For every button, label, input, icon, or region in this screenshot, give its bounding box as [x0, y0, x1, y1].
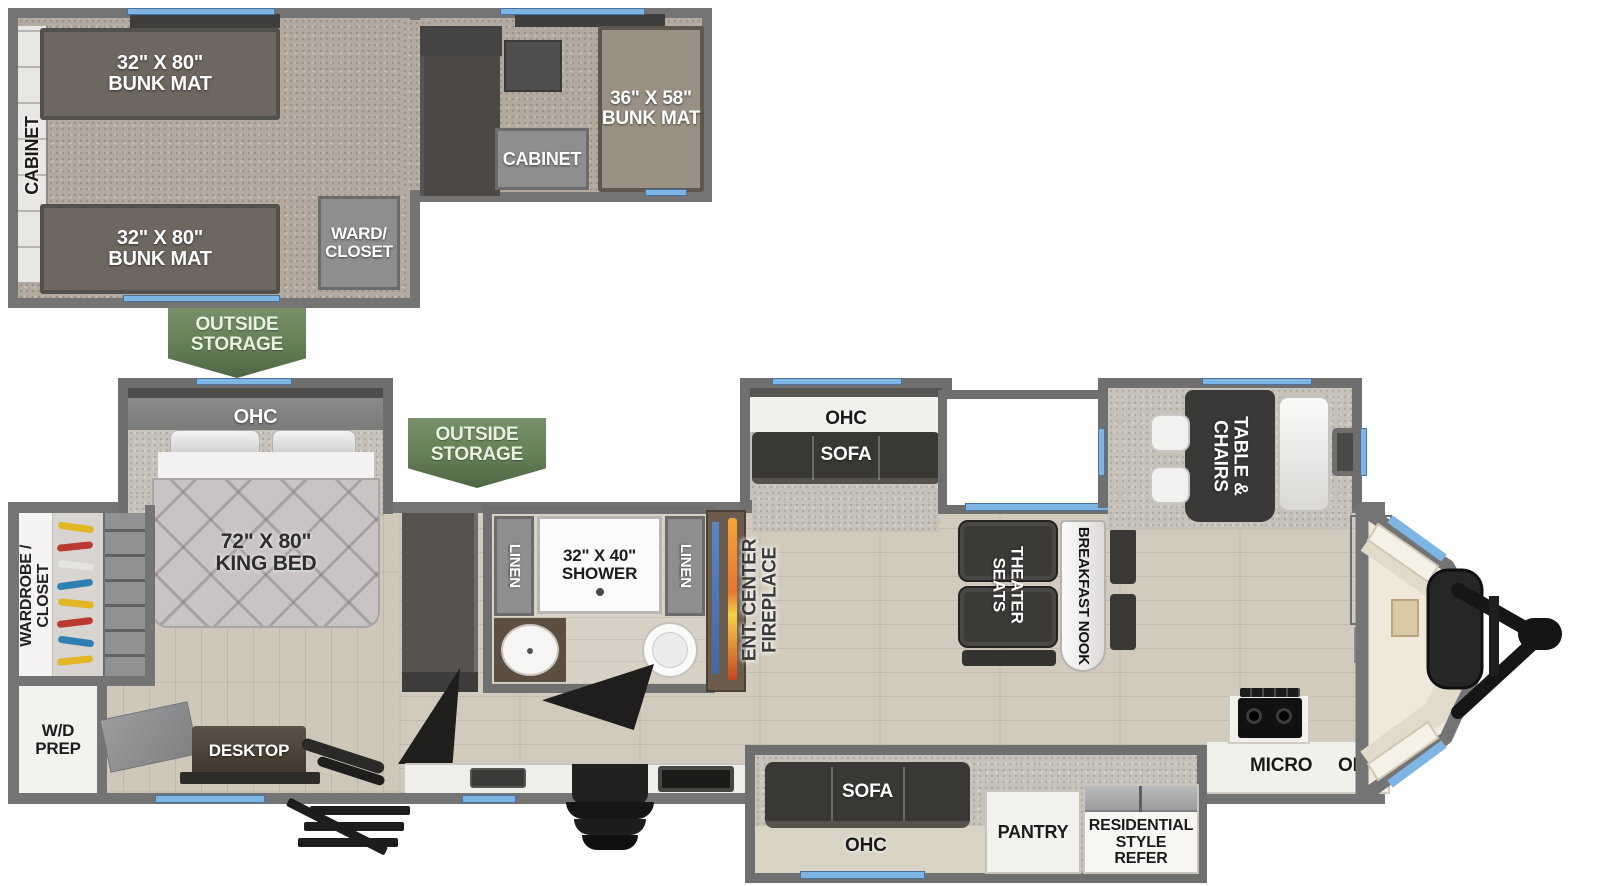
wardrobe-shelves: [103, 513, 149, 679]
dinette-table-label: TABLE &CHAIRS: [1210, 416, 1250, 496]
bedroom-window-bottom: [155, 795, 265, 803]
loft-window-top-right: [500, 8, 645, 15]
sofa-slide-ohc-label: OHC: [825, 409, 867, 429]
outside-storage-2-label: OUTSIDESTORAGE: [431, 425, 523, 465]
wd-prep-label: W/DPREP: [35, 722, 81, 758]
dinette-window-top: [1202, 378, 1312, 385]
refer-label-box: RESIDENTIALSTYLEREFER: [1083, 812, 1199, 874]
ward-closet: WARD/CLOSET: [318, 196, 400, 290]
bunk-mat-bottom: 32" X 80"BUNK MAT: [40, 204, 280, 294]
outside-storage-banner-1: OUTSIDESTORAGE: [168, 308, 306, 378]
breakfast-nook-label: BREAKFAST NOOK: [1075, 527, 1091, 665]
sofa-top-label: SOFA: [821, 445, 872, 465]
loft-storage-box: [504, 40, 562, 92]
sofa-slide-ohc: OHC: [750, 388, 942, 432]
cooktop-controls: [1240, 688, 1300, 697]
bedroom-ohc-label: OHC: [234, 407, 278, 428]
king-slide-ohc-band: OHC: [128, 388, 383, 430]
king-bed-label: 72" X 80"KING BED: [215, 531, 316, 575]
bunk-mat-right: 36" X 58"BUNK MAT: [598, 26, 704, 192]
loft-cabinet-label: CABINET: [23, 116, 42, 195]
bunk-mat-top-label: 32" X 80"BUNK MAT: [108, 53, 212, 95]
cooktop-burner-1: [1246, 708, 1262, 724]
ward-closet-label: WARD/CLOSET: [325, 225, 393, 261]
entry-step-well: [572, 764, 648, 804]
sofa-top: SOFA: [752, 432, 940, 484]
theater-slide-window: [965, 503, 1113, 511]
entry-step-3: [582, 835, 638, 850]
shower-drain: [596, 588, 604, 596]
loft-stair-landing: [420, 26, 502, 56]
dinette-chair-2: [1150, 466, 1190, 504]
bunk-mat-right-label: 36" X 58"BUNK MAT: [602, 89, 700, 129]
king-bed-mattress: 72" X 80"KING BED: [152, 478, 380, 628]
mid-window-bottom: [462, 795, 516, 803]
cooktop-burner-2: [1276, 708, 1292, 724]
wardrobe-wall-bottom: [19, 676, 155, 686]
bottom-slide-window: [800, 871, 925, 879]
counter-tray: [470, 768, 526, 788]
sofa-slide-window: [772, 378, 902, 385]
dinette-bench: [1278, 396, 1330, 512]
loft-window-top-left: [127, 8, 275, 15]
rv-floorplan: CABINET 32" X 80"BUNK MAT 32" X 80"BUNK …: [0, 0, 1600, 886]
dinette-chair-1: [1150, 414, 1190, 452]
dinette-window-left: [1098, 428, 1105, 476]
loft-mid-cabinet: CABINET: [495, 128, 589, 190]
outside-storage-banner-2: OUTSIDESTORAGE: [408, 418, 546, 488]
loft-mid-cabinet-label: CABINET: [503, 150, 582, 169]
hitch-coupler: [1518, 618, 1562, 650]
front-sink-box: [1392, 600, 1418, 636]
sofa-slide-opening: [752, 490, 940, 532]
loft-stairs: [420, 56, 500, 196]
bottom-ohc-label: OHC: [845, 836, 887, 856]
loft-window-bottom: [123, 295, 280, 302]
bath-sink-drain: [527, 648, 533, 654]
outside-storage-1-label: OUTSIDESTORAGE: [191, 315, 283, 355]
ent-center-label-box: ENT. CENTERFIREPLACE: [690, 520, 830, 680]
rear-entry-steps: [296, 800, 416, 860]
loft-window-right-bottom: [645, 189, 687, 196]
main-stairs-landing: [402, 672, 478, 692]
theater-slideout: [938, 390, 1124, 514]
pantry: PANTRY: [985, 790, 1081, 874]
nook-bench-2: [1110, 594, 1136, 650]
loft-overhead-shelf: [130, 14, 280, 28]
wardrobe-label: WARDROBE /CLOSET: [19, 545, 53, 647]
ent-center-label: ENT. CENTERFIREPLACE: [740, 539, 780, 661]
bottom-sofa-label: SOFA: [842, 782, 893, 802]
bunk-mat-top: 32" X 80"BUNK MAT: [40, 28, 280, 120]
shower-label: 32" X 40"SHOWER: [562, 547, 637, 583]
bunk-mat-bottom-label: 32" X 80"BUNK MAT: [108, 228, 212, 270]
linen-left-label: LINEN: [506, 544, 522, 588]
refer-label: RESIDENTIALSTYLEREFER: [1089, 818, 1193, 868]
desktop-label: DESKTOP: [209, 742, 289, 760]
counter-sink-dark: [658, 766, 734, 792]
king-slide-window: [196, 378, 292, 385]
front-cap: [1330, 460, 1600, 860]
pantry-label: PANTRY: [998, 823, 1069, 842]
bottom-sofa: SOFA: [765, 762, 970, 828]
entry-step-2: [574, 819, 646, 835]
wd-prep-room: W/DPREP: [19, 686, 97, 793]
toilet-seat: [652, 632, 688, 668]
shower: 32" X 40"SHOWER: [537, 516, 662, 614]
wardrobe-wall-right: [145, 505, 155, 683]
dinette-table: TABLE &CHAIRS: [1185, 390, 1275, 522]
entry-step-1: [566, 802, 654, 819]
linen-left: LINEN: [494, 516, 534, 616]
micro-label: MICRO: [1250, 756, 1312, 776]
nook-bench-1: [1110, 528, 1136, 584]
refrigerator-door-split: [1139, 786, 1142, 812]
desktop-unit: DESKTOP: [192, 726, 306, 776]
desktop-base: [180, 772, 320, 784]
main-stairs: [402, 513, 478, 675]
